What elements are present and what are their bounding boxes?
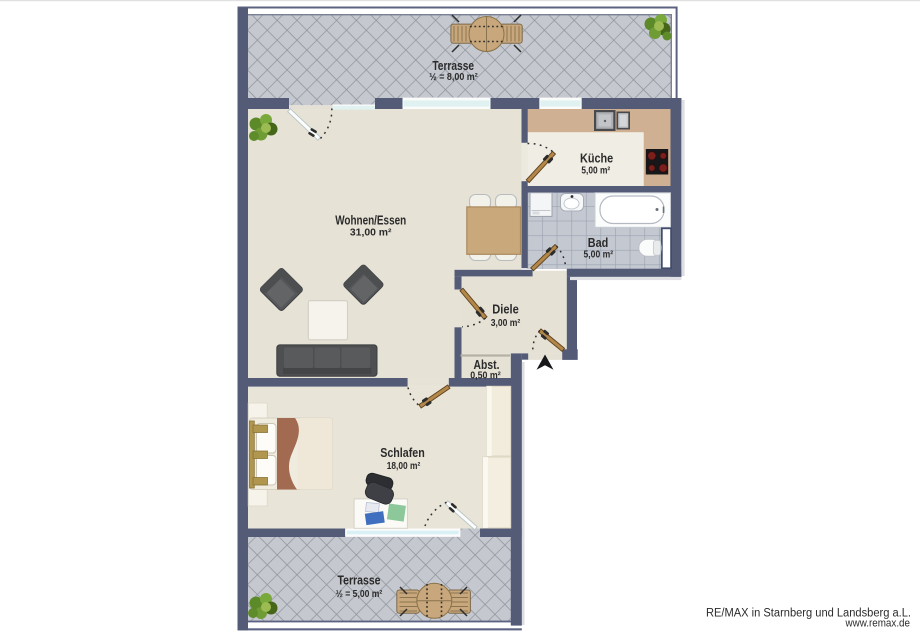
svg-text:Terrasse: Terrasse — [338, 573, 381, 587]
svg-text:3,00 m²: 3,00 m² — [491, 318, 521, 329]
svg-text:½ = 8,00 m²: ½ = 8,00 m² — [429, 72, 478, 83]
svg-text:Diele: Diele — [492, 302, 519, 316]
svg-text:31,00 m²: 31,00 m² — [350, 228, 392, 239]
svg-text:Wohnen/Essen: Wohnen/Essen — [335, 214, 406, 228]
svg-text:5,00 m²: 5,00 m² — [584, 249, 614, 260]
svg-text:½ = 5,00 m²: ½ = 5,00 m² — [336, 589, 383, 600]
svg-text:5,00 m²: 5,00 m² — [581, 166, 610, 177]
svg-text:18,00 m²: 18,00 m² — [387, 461, 421, 472]
svg-text:0,50 m²: 0,50 m² — [470, 371, 501, 382]
svg-text:Schlafen: Schlafen — [380, 446, 425, 460]
svg-text:Bad: Bad — [588, 236, 609, 250]
svg-text:www.remax.de: www.remax.de — [845, 618, 911, 630]
svg-text:Küche: Küche — [580, 152, 613, 166]
